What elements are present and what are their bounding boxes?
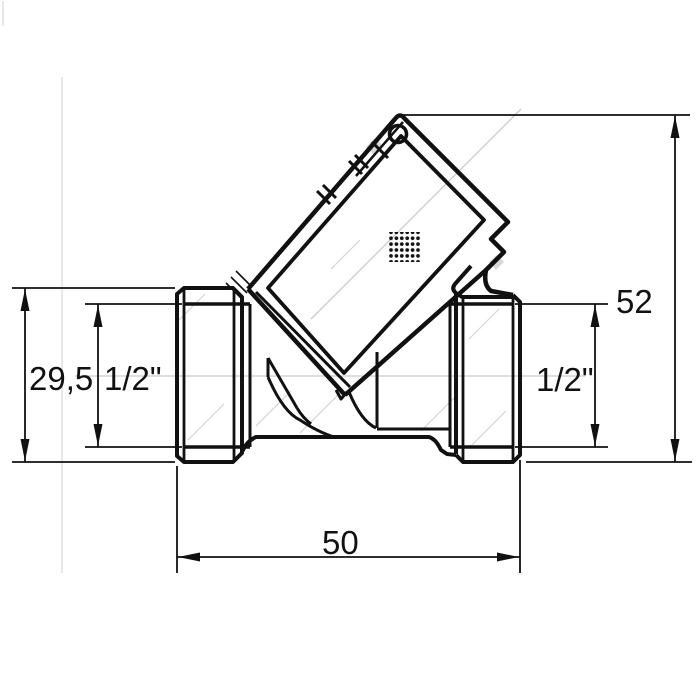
arrow-down [94,424,103,446]
arrow-up [94,305,103,327]
arrow-up [671,116,680,138]
arrow-up [591,305,600,327]
valve-body [177,266,520,462]
arrow-down [21,439,30,461]
dim-label-thread-right: 1/2" [536,361,594,398]
dim-label-thread-left: 1/2" [104,360,162,397]
dim-label-total-width: 50 [322,524,359,561]
diagonal-cap [226,116,513,396]
stipple-marking [389,232,421,262]
arrow-left [178,553,200,562]
arrow-up [21,289,30,311]
dim-total-width: 50 [177,460,520,573]
right-seat-arc [349,392,376,428]
internal-chamber [268,352,450,437]
arrow-down [671,439,680,461]
left-seat-edge [268,358,297,408]
body-bottom-profile [242,437,456,455]
arrow-right [497,553,519,562]
dimensions: 29,5 1/2" 1/2" 52 [12,115,692,573]
dim-label-port-height: 29,5 [29,360,93,397]
valve-technical-drawing: 29,5 1/2" 1/2" 52 [0,0,700,700]
arrow-down [591,424,600,446]
dim-total-height: 52 [403,115,692,462]
cap-lower-left-edge [248,289,345,395]
left-hex-outline [177,288,242,462]
construction-lines [75,109,585,376]
left-seat-arc [268,377,334,437]
dim-label-total-height: 52 [616,283,653,320]
cap-lower-left-edge-inner [256,292,350,387]
left-port-hex [177,288,250,462]
scan-artifact-lines [3,1,62,573]
cap-rim-line [356,122,403,176]
drawing-page: 29,5 1/2" 1/2" 52 [0,0,700,700]
